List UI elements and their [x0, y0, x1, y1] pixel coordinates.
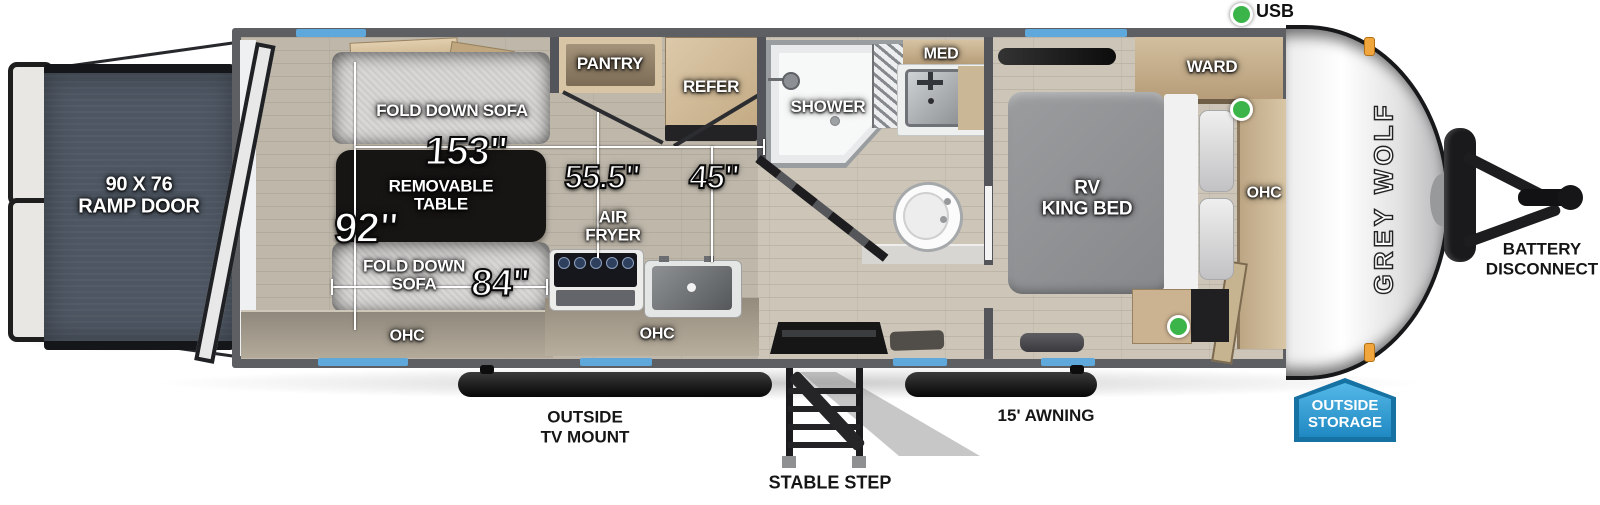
label-pantry: PANTRY: [577, 55, 643, 73]
entry-step-tread: [782, 330, 876, 337]
bed-sheet-strip: [1164, 94, 1198, 292]
bed-pillow: [1199, 198, 1234, 280]
entry-step-platform: [770, 322, 888, 354]
bedroom-ohc-cabinet: [1237, 99, 1286, 349]
label-ohc-garage: OHC: [390, 327, 425, 344]
marker-light-icon: [1364, 343, 1375, 362]
dim-garage-width: 92": [333, 204, 400, 252]
label-outside-tv-mount: OUTSIDE TV MOUNT: [541, 407, 630, 446]
usb-port-dot: [1230, 98, 1253, 121]
burner-icon: [558, 257, 570, 269]
awning-bracket-icon: [480, 365, 494, 374]
bed-pillow: [1199, 110, 1234, 192]
floorplan-canvas: 90 X 76 RAMP DOOR: [0, 0, 1600, 505]
dim-tick: [763, 139, 765, 155]
window: [1025, 29, 1127, 37]
label-fold-down-sofa-top: FOLD DOWN SOFA: [376, 102, 528, 120]
dim-line-92: [354, 62, 356, 330]
bath-bed-wall-lower: [984, 308, 993, 359]
marker-light-icon: [1364, 37, 1375, 56]
label-med: MED: [924, 45, 959, 62]
toilet-hinge-icon: [940, 216, 947, 223]
dim-sofa-length: 84": [470, 263, 530, 306]
label-stable-step: STABLE STEP: [769, 473, 892, 494]
window: [318, 358, 408, 366]
label-ramp-door: 90 X 76 RAMP DOOR: [78, 174, 199, 217]
dim-tick: [331, 279, 333, 295]
label-ohc-bedroom: OHC: [1247, 184, 1282, 201]
awning-roller: [905, 372, 1097, 397]
bedroom-tv-bar: [998, 48, 1116, 65]
dim-entry-width: 45": [688, 158, 740, 196]
burner-icon: [590, 257, 602, 269]
brand-logo: GREY WOLF: [1369, 102, 1400, 295]
label-ohc-kitchen: OHC: [640, 325, 675, 342]
dim-tick: [546, 279, 548, 295]
label-ward: WARD: [1187, 58, 1238, 76]
pantry-wall-stub: [550, 37, 559, 93]
bath-pocket-door: [985, 186, 992, 260]
window: [1041, 358, 1095, 366]
entry-mat: [890, 330, 945, 351]
bedroom-black-cabinet: [1191, 289, 1229, 342]
label-shower: SHOWER: [791, 98, 866, 116]
label-fold-down-sofa-bottom: FOLD DOWN SOFA: [363, 258, 465, 295]
dim-garage-length: 153": [424, 130, 509, 175]
usb-port-dot: [1167, 315, 1190, 338]
bath-faucet-icon: [928, 72, 933, 90]
label-air-fryer: AIR FRYER: [585, 209, 641, 246]
awning-bracket-icon: [1070, 365, 1084, 374]
burner-icon: [622, 257, 634, 269]
outside-storage-label: OUTSIDE STORAGE: [1308, 397, 1382, 432]
sink-drain-icon: [687, 283, 696, 292]
refrigerator-base: [665, 125, 757, 141]
usb-legend-label: USB: [1256, 1, 1294, 22]
bath-sink-drain-icon: [928, 98, 934, 104]
dim-line-153: [355, 146, 765, 148]
bath-wood-sliver: [958, 66, 985, 130]
window: [580, 358, 652, 366]
hitch-coupler-knob: [1558, 185, 1583, 210]
label-rv-king-bed: RV KING BED: [1042, 178, 1133, 219]
burner-icon: [574, 257, 586, 269]
label-battery-disconnect: BATTERY DISCONNECT: [1486, 239, 1598, 278]
label-removable-table: REMOVABLE TABLE: [389, 178, 494, 215]
bedroom-bench: [1020, 333, 1084, 352]
entry-door-window: [893, 358, 947, 366]
bath-sink: [905, 69, 963, 127]
label-awning: 15' AWNING: [998, 406, 1095, 426]
dim-kitchen-width: 55.5": [563, 158, 641, 196]
stove-front: [556, 290, 635, 306]
sink-faucet-icon: [659, 256, 669, 262]
stable-step-foot: [852, 456, 866, 468]
toilet-hinge-icon: [944, 198, 951, 205]
stable-step-foot: [782, 456, 796, 468]
window: [296, 29, 366, 37]
usb-legend-dot: [1230, 3, 1253, 26]
shower-drain-icon: [830, 116, 840, 126]
burner-icon: [606, 257, 618, 269]
awning-roller: [458, 372, 772, 397]
shower-head-icon: [782, 72, 800, 90]
label-refer: REFER: [683, 78, 739, 96]
